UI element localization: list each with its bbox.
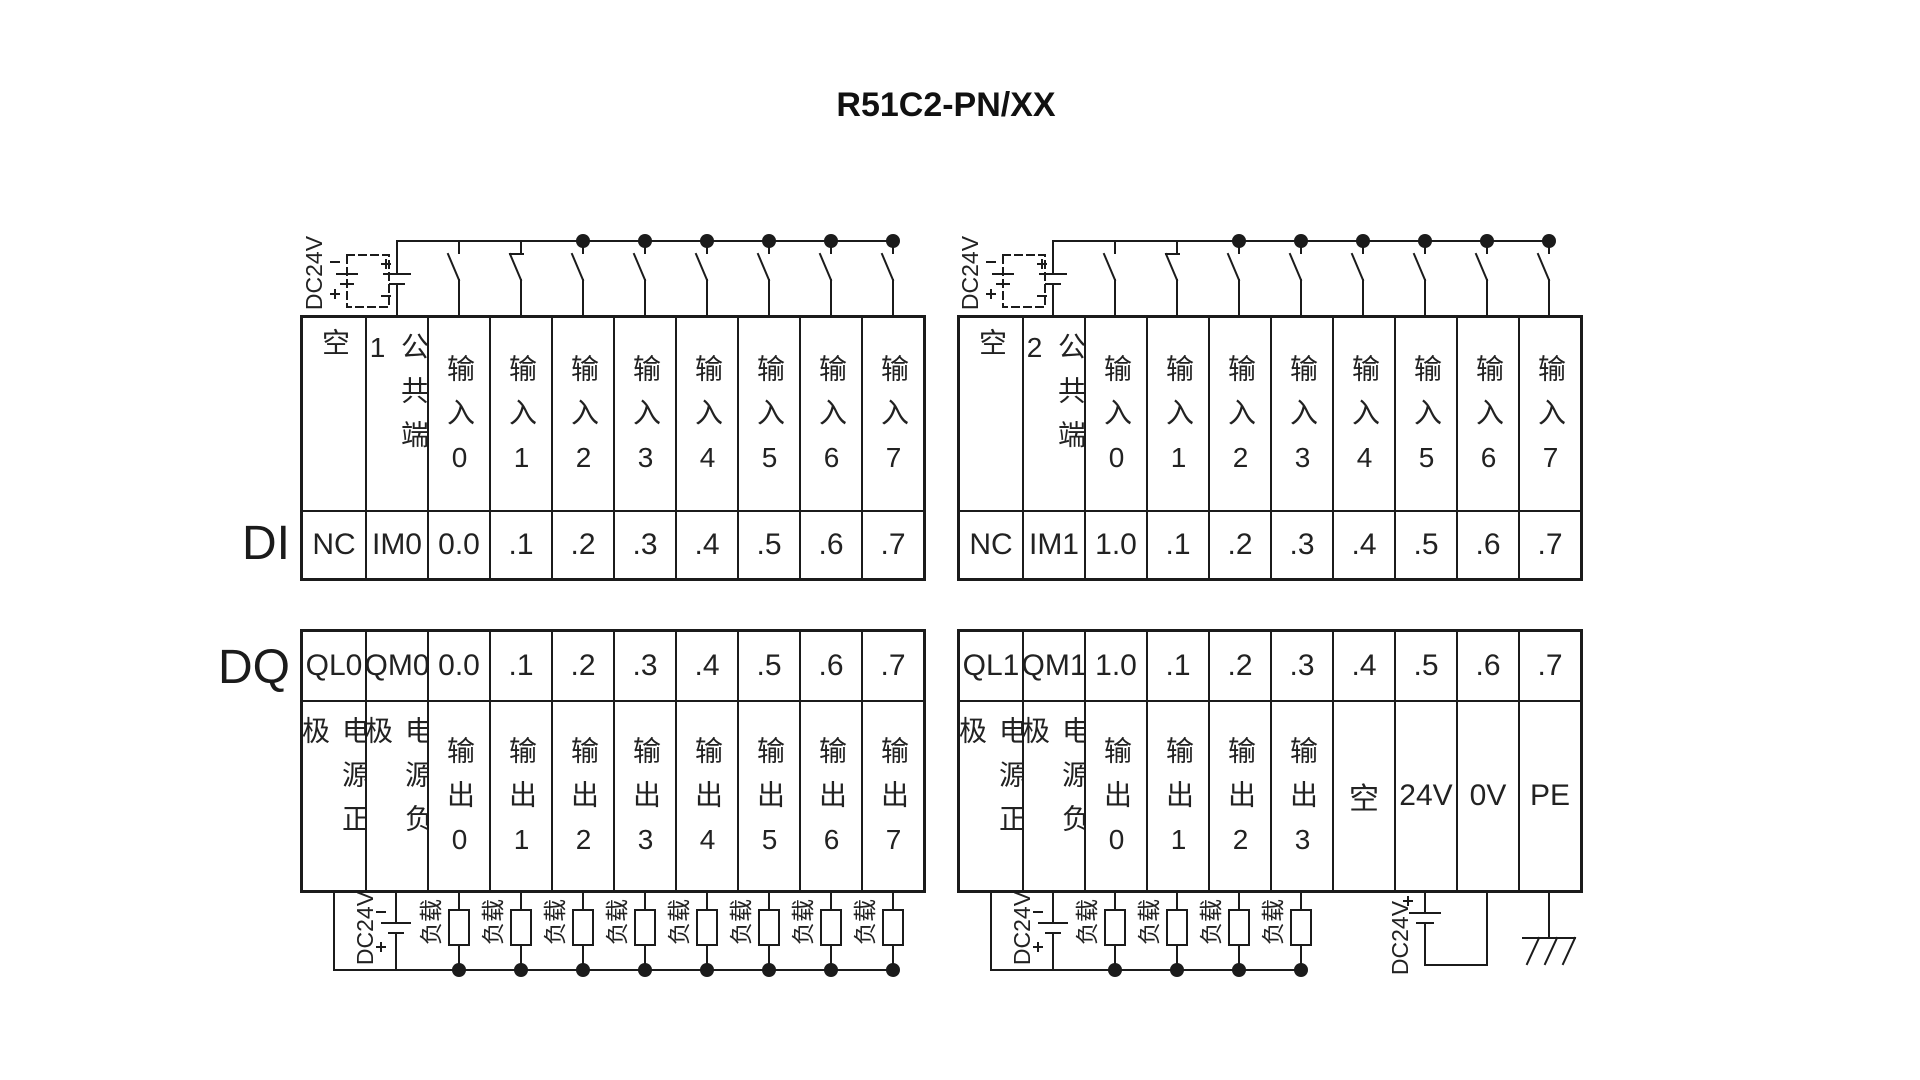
load-label: 负载 [1198,890,1224,954]
pin-cell: .5 [737,632,799,700]
pin-cell: .5 [1394,632,1456,700]
pin-cell: .4 [1332,510,1394,578]
pin-cell: .1 [1146,632,1208,700]
di-right-wiring [987,234,1556,318]
header-cell: 公共端2 [1022,318,1084,510]
header-cell: 输入7 [1518,318,1580,510]
load-resistor-icon [511,890,531,977]
dq-row-label: DQ [190,640,290,695]
header-cell: 公共端1 [365,318,427,510]
header-cell: 0V [1456,700,1518,890]
header-cell: 输入1 [1146,318,1208,510]
load-label: 负载 [1074,890,1100,954]
pin-cell: 1.0 [1084,510,1146,578]
pin-cell: .7 [1518,510,1580,578]
battery-icon [1034,890,1067,970]
pin-cell: QL0 [303,632,365,700]
pin-cell: .1 [1146,510,1208,578]
battery-icon [377,890,410,970]
header-cell: 输出2 [1208,700,1270,890]
load-label: 负载 [666,890,692,954]
switch-icon [634,241,645,318]
header-cell: 输入4 [1332,318,1394,510]
load-resistor-icon [821,890,841,977]
zero-volt-wire [1425,890,1487,965]
junction-dot [700,234,714,248]
pin-cell: NC [303,510,365,578]
di-row-label: DI [190,516,290,571]
load-label: 负载 [542,890,568,954]
pin-cell: .7 [861,510,923,578]
pin-cell: .7 [1518,632,1580,700]
header-cell: 输出4 [675,700,737,890]
pin-cell: 0.0 [427,510,489,578]
header-cell: 输入3 [1270,318,1332,510]
battery-icon [987,241,1066,318]
di-left-table: 空 公共端1 输入0 输入1 输入2 输入3 输入4 输入5 输入6 输入7 N… [300,315,926,581]
switch-icon [1352,241,1363,318]
header-cell: 电源正极 [303,700,365,890]
header-cell: 输入5 [1394,318,1456,510]
junction-dot [1232,234,1246,248]
pin-cell: .2 [1208,632,1270,700]
header-cell: 输出3 [613,700,675,890]
header-cell: 空 [1332,700,1394,890]
battery-icon [331,241,410,318]
load-label: 负载 [852,890,878,954]
header-cell: 空 [960,318,1022,510]
header-cell: PE [1518,700,1580,890]
junction-dot [576,234,590,248]
pin-cell: 1.0 [1084,632,1146,700]
pin-cell: .4 [675,510,737,578]
pin-cell: .6 [799,510,861,578]
junction-dot [1356,234,1370,248]
header-cell: 输出7 [861,700,923,890]
pin-cell: .3 [1270,632,1332,700]
header-cell: 输入0 [1084,318,1146,510]
switch-icon [1538,241,1549,318]
pin-cell: .1 [489,510,551,578]
switch-icon [1476,241,1487,318]
header-cell: 输出6 [799,700,861,890]
pin-cell: .5 [1394,510,1456,578]
pin-cell: IM1 [1022,510,1084,578]
header-cell: 电源负极 [365,700,427,890]
pin-cell: .6 [1456,510,1518,578]
load-label: 负载 [1260,890,1286,954]
load-resistor-icon [759,890,779,977]
header-cell: 输出0 [427,700,489,890]
dq-right-table: QL1 QM1 1.0 .1 .2 .3 .4 .5 .6 .7 电源正极 电源… [957,629,1583,893]
header-cell: 输入6 [799,318,861,510]
header-cell: 输入3 [613,318,675,510]
switch-icon [1290,241,1301,318]
load-label: 负载 [418,890,444,954]
junction-dot [1294,234,1308,248]
pin-cell: 0.0 [427,632,489,700]
junction-dot [1418,234,1432,248]
header-cell: 输出0 [1084,700,1146,890]
dc24v-label: DC24V [957,225,983,321]
pin-cell: IM0 [365,510,427,578]
load-label: 负载 [604,890,630,954]
pin-cell: NC [960,510,1022,578]
switch-icon [572,241,583,318]
load-label: 负载 [1136,890,1162,954]
load-resistor-icon [1291,890,1311,977]
pin-cell: .6 [799,632,861,700]
header-cell: 输入7 [861,318,923,510]
switch-icon [882,241,893,318]
junction-dot [638,234,652,248]
dc24v-label: DC24V [352,880,378,976]
header-cell: 输出1 [1146,700,1208,890]
load-resistor-icon [449,890,469,977]
pin-cell: .3 [1270,510,1332,578]
header-cell: 输出3 [1270,700,1332,890]
switch-icon [696,241,707,318]
load-resistor-icon [635,890,655,977]
header-cell: 24V [1394,700,1456,890]
junction-dot [1480,234,1494,248]
pin-cell: .4 [1332,632,1394,700]
dc24v-label: DC24V [1009,880,1035,976]
load-resistor-icon [883,890,903,977]
load-label: 负载 [728,890,754,954]
load-resistor-icon [697,890,717,977]
load-resistor-icon [1167,890,1187,977]
header-cell: 空 [303,318,365,510]
header-cell: 电源正极 [960,700,1022,890]
switch-icon [448,241,459,318]
pin-cell: .3 [613,632,675,700]
switch-icon [820,241,831,318]
load-resistor-icon [573,890,593,977]
switch-icon [758,241,769,318]
pin-cell: QM1 [1022,632,1084,700]
pin-cell: .6 [1456,632,1518,700]
header-cell: 输出1 [489,700,551,890]
pin-cell: QM0 [365,632,427,700]
switch-icon [1166,241,1179,318]
switch-icon [1104,241,1115,318]
switch-icon [1414,241,1425,318]
pin-cell: .4 [675,632,737,700]
pin-cell: QL1 [960,632,1022,700]
header-cell: 输入5 [737,318,799,510]
pin-cell: .2 [551,510,613,578]
pin-cell: .7 [861,632,923,700]
di-left-wiring [331,234,900,318]
header-cell: 输出2 [551,700,613,890]
header-cell: 输入2 [1208,318,1270,510]
pin-cell: .2 [551,632,613,700]
header-cell: 输入4 [675,318,737,510]
header-cell: 输入1 [489,318,551,510]
dq-left-table: QL0 QM0 0.0 .1 .2 .3 .4 .5 .6 .7 电源正极 电源… [300,629,926,893]
header-cell: 输入0 [427,318,489,510]
dc24v-label: DC24V [301,225,327,321]
load-resistor-icon [1105,890,1125,977]
load-label: 负载 [480,890,506,954]
pin-cell: .2 [1208,510,1270,578]
ground-icon [1523,938,1575,964]
header-cell: 输入2 [551,318,613,510]
switch-icon [1228,241,1239,318]
header-cell: 输出5 [737,700,799,890]
header-cell: 电源负极 [1022,700,1084,890]
junction-dot [762,234,776,248]
pin-cell: .1 [489,632,551,700]
junction-dot [1542,234,1556,248]
junction-dot [886,234,900,248]
switch-icon [510,241,523,318]
load-resistor-icon [1229,890,1249,977]
junction-dot [824,234,838,248]
di-right-table: 空 公共端2 输入0 输入1 输入2 输入3 输入4 输入5 输入6 输入7 N… [957,315,1583,581]
pin-cell: .3 [613,510,675,578]
pin-cell: .5 [737,510,799,578]
load-label: 负载 [790,890,816,954]
header-cell: 输入6 [1456,318,1518,510]
dc24v-label: DC24V [1387,890,1413,986]
